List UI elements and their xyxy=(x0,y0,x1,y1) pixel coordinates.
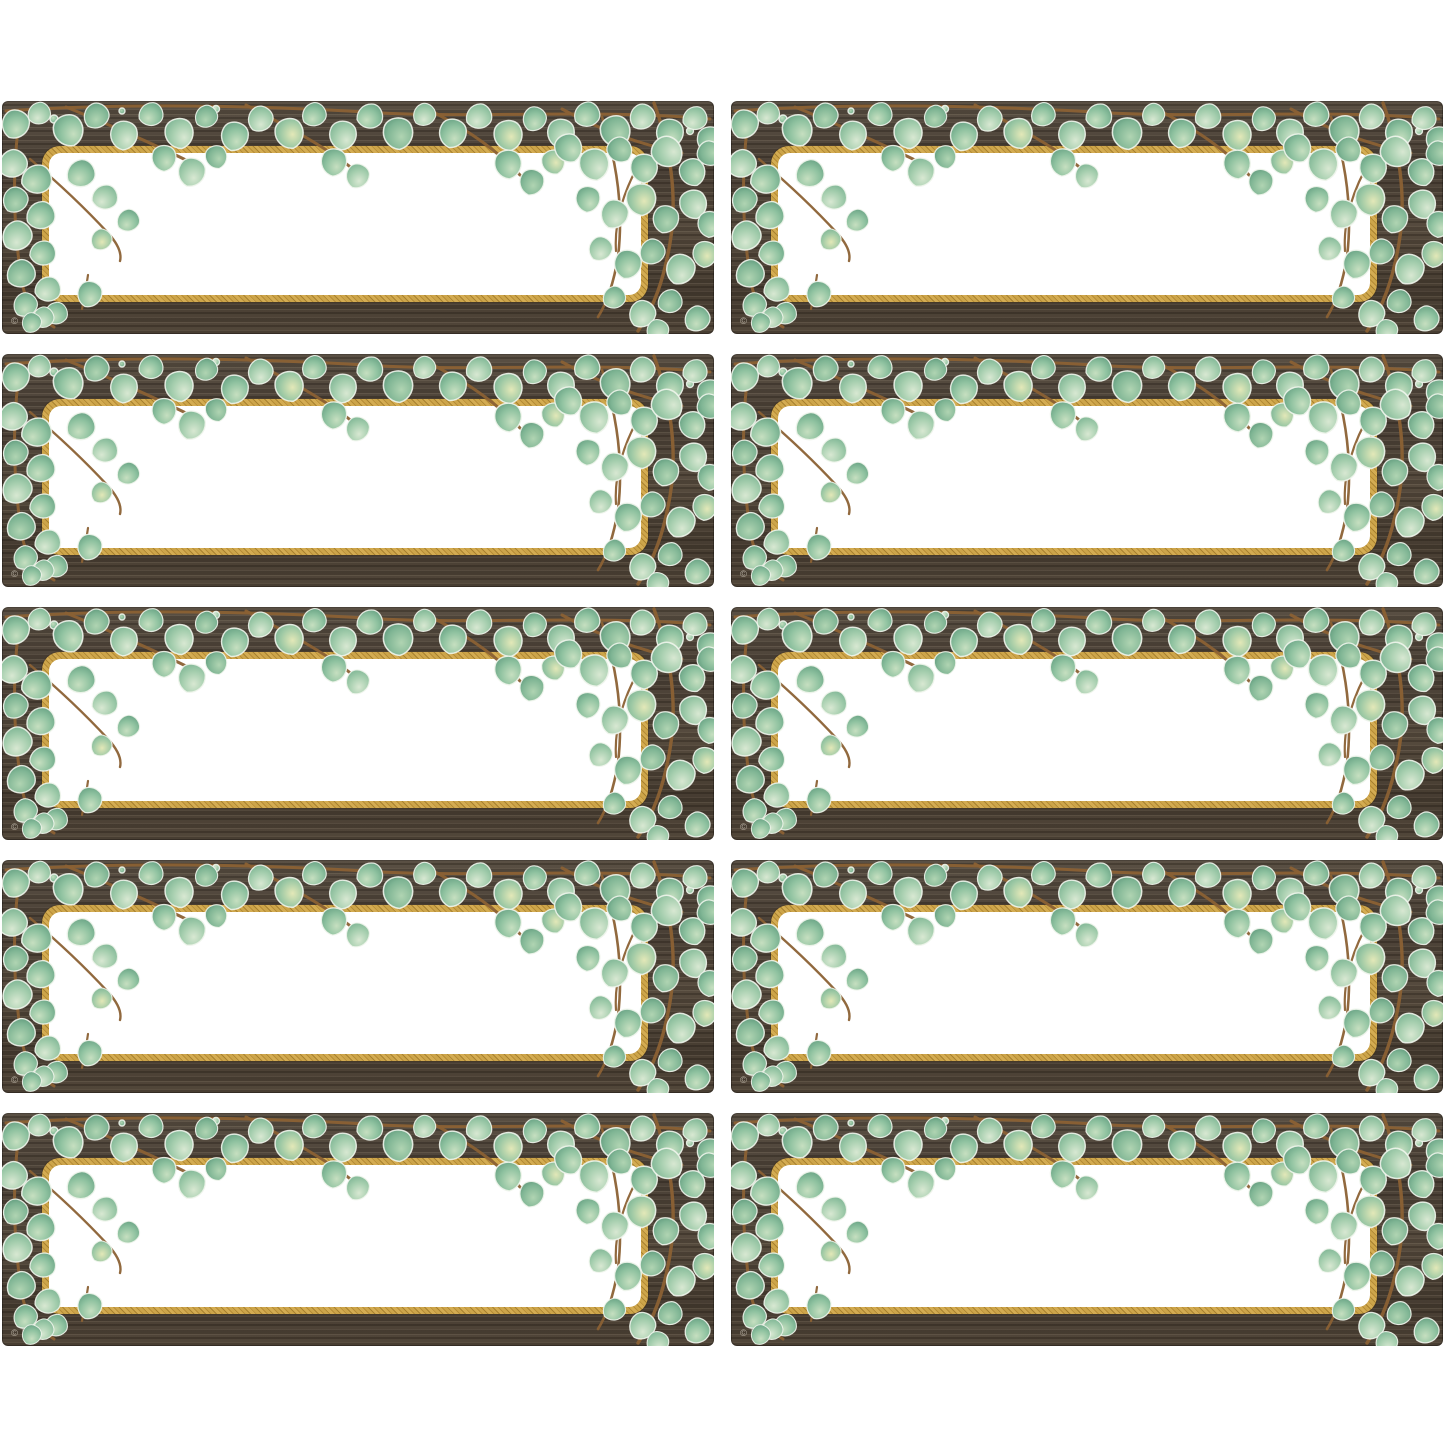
label-gold-frame xyxy=(42,399,648,555)
label-gold-frame xyxy=(771,146,1377,302)
label-gold-frame xyxy=(771,399,1377,555)
label-blank-area xyxy=(778,912,1370,1054)
label-blank-area xyxy=(778,659,1370,801)
copyright-mark: © TCR xyxy=(11,316,43,327)
copyright-mark: © TCR xyxy=(740,822,772,833)
label-gold-frame xyxy=(771,652,1377,808)
label-card: © TCR xyxy=(731,607,1443,840)
label-gold-frame xyxy=(42,652,648,808)
label-card: © TCR xyxy=(731,1113,1443,1346)
label-blank-area xyxy=(778,1165,1370,1307)
copyright-mark: © TCR xyxy=(740,569,772,580)
labels-grid: © TCR © TCR © TCR © TCR xyxy=(0,0,1445,1346)
label-gold-frame xyxy=(771,905,1377,1061)
label-gold-frame xyxy=(42,1158,648,1314)
label-card: © TCR xyxy=(2,1113,714,1346)
copyright-mark: © TCR xyxy=(740,1328,772,1339)
label-blank-area xyxy=(49,1165,641,1307)
label-card: © TCR xyxy=(731,101,1443,334)
copyright-mark: © TCR xyxy=(11,822,43,833)
copyright-mark: © TCR xyxy=(740,1075,772,1086)
label-card: © TCR xyxy=(2,607,714,840)
copyright-mark: © TCR xyxy=(11,569,43,580)
label-blank-area xyxy=(49,406,641,548)
label-blank-area xyxy=(49,659,641,801)
label-gold-frame xyxy=(42,905,648,1061)
label-gold-frame xyxy=(771,1158,1377,1314)
label-card: © TCR xyxy=(2,860,714,1093)
label-card: © TCR xyxy=(731,354,1443,587)
label-blank-area xyxy=(49,153,641,295)
label-card: © TCR xyxy=(2,354,714,587)
copyright-mark: © TCR xyxy=(11,1328,43,1339)
copyright-mark: © TCR xyxy=(740,316,772,327)
copyright-mark: © TCR xyxy=(11,1075,43,1086)
label-blank-area xyxy=(49,912,641,1054)
label-card: © TCR xyxy=(2,101,714,334)
label-blank-area xyxy=(778,406,1370,548)
label-card: © TCR xyxy=(731,860,1443,1093)
label-blank-area xyxy=(778,153,1370,295)
label-gold-frame xyxy=(42,146,648,302)
